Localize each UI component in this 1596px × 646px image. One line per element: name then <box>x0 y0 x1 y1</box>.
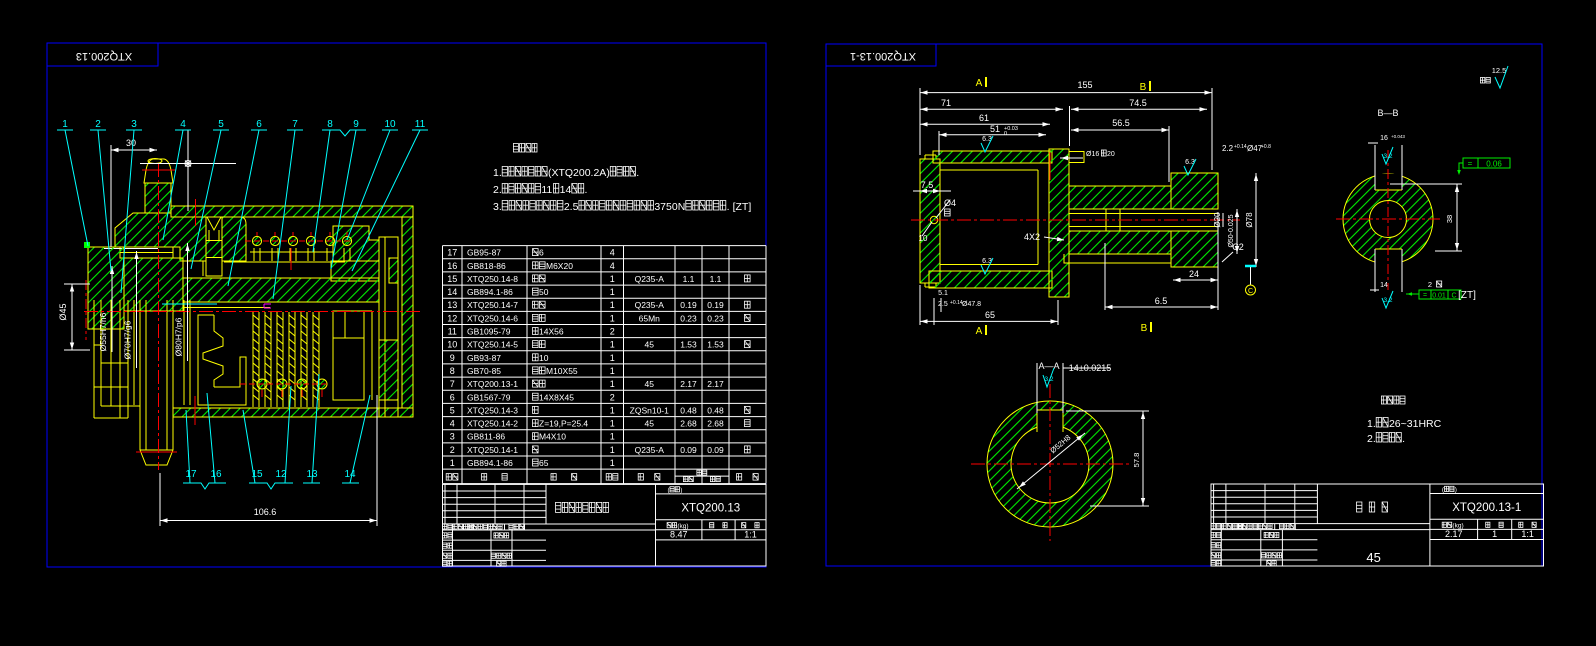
svg-text:8: 8 <box>450 366 455 376</box>
svg-text:15: 15 <box>447 274 457 284</box>
svg-text:0.23: 0.23 <box>680 313 697 323</box>
svg-text:10: 10 <box>919 234 928 243</box>
svg-text:0.48: 0.48 <box>680 405 697 415</box>
svg-text:4: 4 <box>610 261 615 271</box>
svg-text:106.6: 106.6 <box>254 507 277 517</box>
svg-text:14X56: 14X56 <box>539 327 564 337</box>
svg-text:6: 6 <box>450 392 455 402</box>
svg-text:17: 17 <box>447 248 457 258</box>
svg-text:0.06: 0.06 <box>1486 160 1502 169</box>
svg-text:2.17: 2.17 <box>1445 529 1463 539</box>
svg-text:0.09: 0.09 <box>707 445 724 455</box>
svg-text:65: 65 <box>985 310 995 320</box>
svg-text:17: 17 <box>185 469 197 480</box>
svg-text:M4X10: M4X10 <box>539 432 566 442</box>
svg-text:XTQ250.14-6: XTQ250.14-6 <box>467 313 518 323</box>
svg-text:11: 11 <box>541 184 552 196</box>
svg-text:GB811-86: GB811-86 <box>467 432 505 442</box>
svg-text:2.68: 2.68 <box>680 419 697 429</box>
svg-text:0: 0 <box>1004 131 1007 137</box>
svg-text:4: 4 <box>610 248 615 258</box>
svg-text:XTQ200.13-1: XTQ200.13-1 <box>850 50 916 62</box>
svg-text:9: 9 <box>353 119 359 130</box>
svg-text:GB1095-79: GB1095-79 <box>467 327 511 337</box>
svg-text:XTQ250.14-2: XTQ250.14-2 <box>467 419 518 429</box>
svg-text:1: 1 <box>610 445 615 455</box>
svg-text:2.17: 2.17 <box>680 379 697 389</box>
svg-text:71: 71 <box>941 98 951 108</box>
svg-text:3.2: 3.2 <box>1383 153 1392 160</box>
svg-text:1.: 1. <box>1367 418 1376 430</box>
svg-text:A: A <box>976 78 983 89</box>
svg-text:+0.14: +0.14 <box>1234 144 1247 150</box>
svg-text:): ) <box>680 487 682 494</box>
svg-text:Ø20: Ø20 <box>1213 212 1222 228</box>
svg-text:.: . <box>727 201 730 213</box>
svg-text:[ZT]: [ZT] <box>733 201 752 213</box>
svg-text:7.5: 7.5 <box>921 180 934 190</box>
svg-text:.: . <box>585 184 588 196</box>
svg-text:24: 24 <box>1189 269 1199 279</box>
svg-text:45: 45 <box>645 340 655 350</box>
svg-text:14: 14 <box>344 469 356 480</box>
svg-text:M6X20: M6X20 <box>546 261 573 271</box>
svg-text:2.5: 2.5 <box>564 201 579 213</box>
svg-text:57.8: 57.8 <box>1132 453 1141 468</box>
svg-text:13: 13 <box>447 300 457 310</box>
svg-text:1: 1 <box>610 379 615 389</box>
svg-text:30: 30 <box>126 138 136 148</box>
svg-text:1: 1 <box>1492 529 1497 539</box>
svg-text:B: B <box>1140 82 1147 93</box>
svg-text:9: 9 <box>450 353 455 363</box>
svg-text:14: 14 <box>447 287 457 297</box>
svg-text:0.23: 0.23 <box>707 313 724 323</box>
svg-text:45: 45 <box>1366 550 1380 565</box>
svg-text:1: 1 <box>610 405 615 415</box>
svg-text:Q235-A: Q235-A <box>635 274 665 284</box>
svg-text:3: 3 <box>450 432 455 442</box>
svg-text:5: 5 <box>218 119 224 130</box>
svg-text:XTQ200.13: XTQ200.13 <box>76 50 132 62</box>
svg-text:56.5: 56.5 <box>1112 118 1130 128</box>
svg-text:0.09: 0.09 <box>680 445 697 455</box>
svg-text:=: = <box>1423 292 1427 299</box>
svg-text:10: 10 <box>447 340 457 350</box>
svg-text:XTQ200.13: XTQ200.13 <box>681 502 740 514</box>
svg-text:7: 7 <box>292 119 298 130</box>
svg-text:XTQ250.14-3: XTQ250.14-3 <box>467 405 518 415</box>
svg-text:2.: 2. <box>1367 433 1376 445</box>
svg-text:14: 14 <box>560 184 572 196</box>
svg-text:1: 1 <box>62 119 68 130</box>
svg-text:51: 51 <box>990 124 1000 134</box>
svg-text:1.53: 1.53 <box>707 340 724 350</box>
svg-text:2.68: 2.68 <box>707 419 724 429</box>
svg-text:.: . <box>636 167 639 179</box>
svg-text:1.53: 1.53 <box>680 340 697 350</box>
svg-text:26~31HRC: 26~31HRC <box>1389 418 1442 430</box>
svg-text:1: 1 <box>450 458 455 468</box>
svg-text:GB894.1-86: GB894.1-86 <box>467 458 513 468</box>
svg-text:3.2: 3.2 <box>1044 376 1053 383</box>
svg-text:ZQSn10-1: ZQSn10-1 <box>630 405 669 415</box>
svg-text:): ) <box>1455 487 1457 494</box>
svg-text:B—B: B—B <box>1377 108 1398 118</box>
svg-text:GB894.1-86: GB894.1-86 <box>467 287 513 297</box>
svg-text:16: 16 <box>447 261 457 271</box>
svg-text:C: C <box>1248 288 1253 295</box>
svg-text:7: 7 <box>450 379 455 389</box>
svg-text:B: B <box>1141 323 1148 334</box>
svg-text:2.5: 2.5 <box>938 301 948 308</box>
svg-text:3: 3 <box>131 119 137 130</box>
svg-text:1: 1 <box>610 458 615 468</box>
svg-text:A—A: A—A <box>1038 361 1059 371</box>
svg-text:1.: 1. <box>493 167 502 179</box>
svg-text:45: 45 <box>645 419 655 429</box>
svg-text:1: 1 <box>610 419 615 429</box>
svg-text:2.2: 2.2 <box>1222 144 1234 153</box>
svg-text:1: 1 <box>610 366 615 376</box>
svg-text:[ZT]: [ZT] <box>1458 290 1476 301</box>
svg-text:5: 5 <box>450 405 455 415</box>
svg-text:2: 2 <box>95 119 101 130</box>
svg-text:4: 4 <box>450 419 455 429</box>
svg-text:65Mn: 65Mn <box>639 313 661 323</box>
svg-text:XTQ250.14-8: XTQ250.14-8 <box>467 274 518 284</box>
svg-text:6: 6 <box>256 119 262 130</box>
svg-text:16: 16 <box>1380 135 1388 142</box>
svg-text:8.47: 8.47 <box>670 529 688 539</box>
svg-text:2.17: 2.17 <box>707 379 724 389</box>
svg-text:Ø47.8: Ø47.8 <box>962 301 981 308</box>
svg-text:1: 1 <box>610 432 615 442</box>
svg-text:XTQ250.14-7: XTQ250.14-7 <box>467 300 518 310</box>
svg-text:Ø80H7/p6: Ø80H7/p6 <box>174 317 184 356</box>
svg-text:1:1: 1:1 <box>1521 529 1534 539</box>
svg-text:3.2: 3.2 <box>1383 297 1392 304</box>
svg-text:1: 1 <box>610 287 615 297</box>
svg-text:12.5: 12.5 <box>1492 66 1507 75</box>
svg-text:6: 6 <box>539 248 544 258</box>
svg-text:0.19: 0.19 <box>680 300 697 310</box>
svg-text:0.19: 0.19 <box>707 300 724 310</box>
svg-text:Q235-A: Q235-A <box>635 445 665 455</box>
svg-text:20: 20 <box>1107 151 1115 158</box>
svg-text:0.48: 0.48 <box>707 405 724 415</box>
svg-text:1: 1 <box>610 340 615 350</box>
svg-text:38: 38 <box>1445 215 1454 223</box>
svg-text:2.: 2. <box>493 184 502 196</box>
svg-text:Ø70H7/g6: Ø70H7/g6 <box>123 320 133 359</box>
svg-text:C: C <box>1451 293 1456 300</box>
svg-text:10: 10 <box>384 119 396 130</box>
svg-text:50: 50 <box>539 287 549 297</box>
svg-text:2: 2 <box>450 445 455 455</box>
svg-text:=: = <box>1468 159 1473 168</box>
svg-text:1.1: 1.1 <box>683 274 695 284</box>
svg-text:14X8X45: 14X8X45 <box>539 392 574 402</box>
svg-text:XTQ250.14-1: XTQ250.14-1 <box>467 445 518 455</box>
svg-text:+0.8: +0.8 <box>1261 144 1271 150</box>
svg-text:Ø55H7/h6: Ø55H7/h6 <box>98 312 108 351</box>
svg-text:Ø78: Ø78 <box>1245 212 1254 228</box>
svg-text:12: 12 <box>447 313 457 323</box>
svg-text:Ø45: Ø45 <box>58 303 68 320</box>
svg-text:3.: 3. <box>493 201 502 213</box>
svg-text:0.01: 0.01 <box>1432 293 1446 300</box>
svg-text:2: 2 <box>610 327 615 337</box>
svg-text:1: 1 <box>610 313 615 323</box>
svg-text:16: 16 <box>210 469 222 480</box>
svg-text:GB70-85: GB70-85 <box>467 366 501 376</box>
svg-text:11: 11 <box>448 327 457 337</box>
svg-text:XTQ200.13-1: XTQ200.13-1 <box>1452 502 1521 514</box>
svg-text:8: 8 <box>327 119 333 130</box>
svg-text:Ø4: Ø4 <box>944 198 956 208</box>
svg-text:61: 61 <box>979 113 989 123</box>
svg-text:1:1: 1:1 <box>744 529 757 539</box>
svg-text:GB1567-79: GB1567-79 <box>467 392 511 402</box>
svg-text:.: . <box>1402 433 1405 445</box>
svg-text:5.1: 5.1 <box>938 290 948 297</box>
svg-text:M10X55: M10X55 <box>546 366 578 376</box>
svg-text:Q235-A: Q235-A <box>635 300 665 310</box>
svg-text:14: 14 <box>1380 282 1388 289</box>
svg-text:+0.043: +0.043 <box>1391 134 1405 139</box>
svg-text:GB818-86: GB818-86 <box>467 261 506 271</box>
svg-text:74.5: 74.5 <box>1129 98 1147 108</box>
svg-text:1: 1 <box>610 353 615 363</box>
svg-text:A: A <box>976 326 983 337</box>
svg-text:Ø50-0.025: Ø50-0.025 <box>1228 214 1235 247</box>
svg-text:10: 10 <box>539 353 549 363</box>
svg-text:45: 45 <box>645 379 655 389</box>
svg-text:GB93-87: GB93-87 <box>467 353 501 363</box>
svg-text:11: 11 <box>415 119 426 130</box>
svg-text:Z=19,P=25.4: Z=19,P=25.4 <box>539 419 588 429</box>
svg-text:3750N: 3750N <box>654 201 685 213</box>
svg-text:2: 2 <box>1428 280 1432 289</box>
svg-text:(XTQ200.2A): (XTQ200.2A) <box>548 167 610 179</box>
svg-text:65: 65 <box>539 458 549 468</box>
svg-text:4: 4 <box>180 119 186 130</box>
svg-text:2: 2 <box>610 392 615 402</box>
svg-text:1.1: 1.1 <box>710 274 722 284</box>
svg-text:XTQ200.13-1: XTQ200.13-1 <box>467 379 518 389</box>
svg-text:GB95-87: GB95-87 <box>467 248 501 258</box>
svg-text:155: 155 <box>1077 80 1092 90</box>
svg-text:1: 1 <box>610 274 615 284</box>
svg-text:1: 1 <box>610 300 615 310</box>
svg-text:4X2: 4X2 <box>1024 232 1040 242</box>
svg-text:XTQ250.14-5: XTQ250.14-5 <box>467 340 518 350</box>
svg-text:Ø16: Ø16 <box>1086 151 1099 158</box>
svg-text:6.5: 6.5 <box>1155 296 1168 306</box>
svg-text:+0.14: +0.14 <box>950 300 963 306</box>
